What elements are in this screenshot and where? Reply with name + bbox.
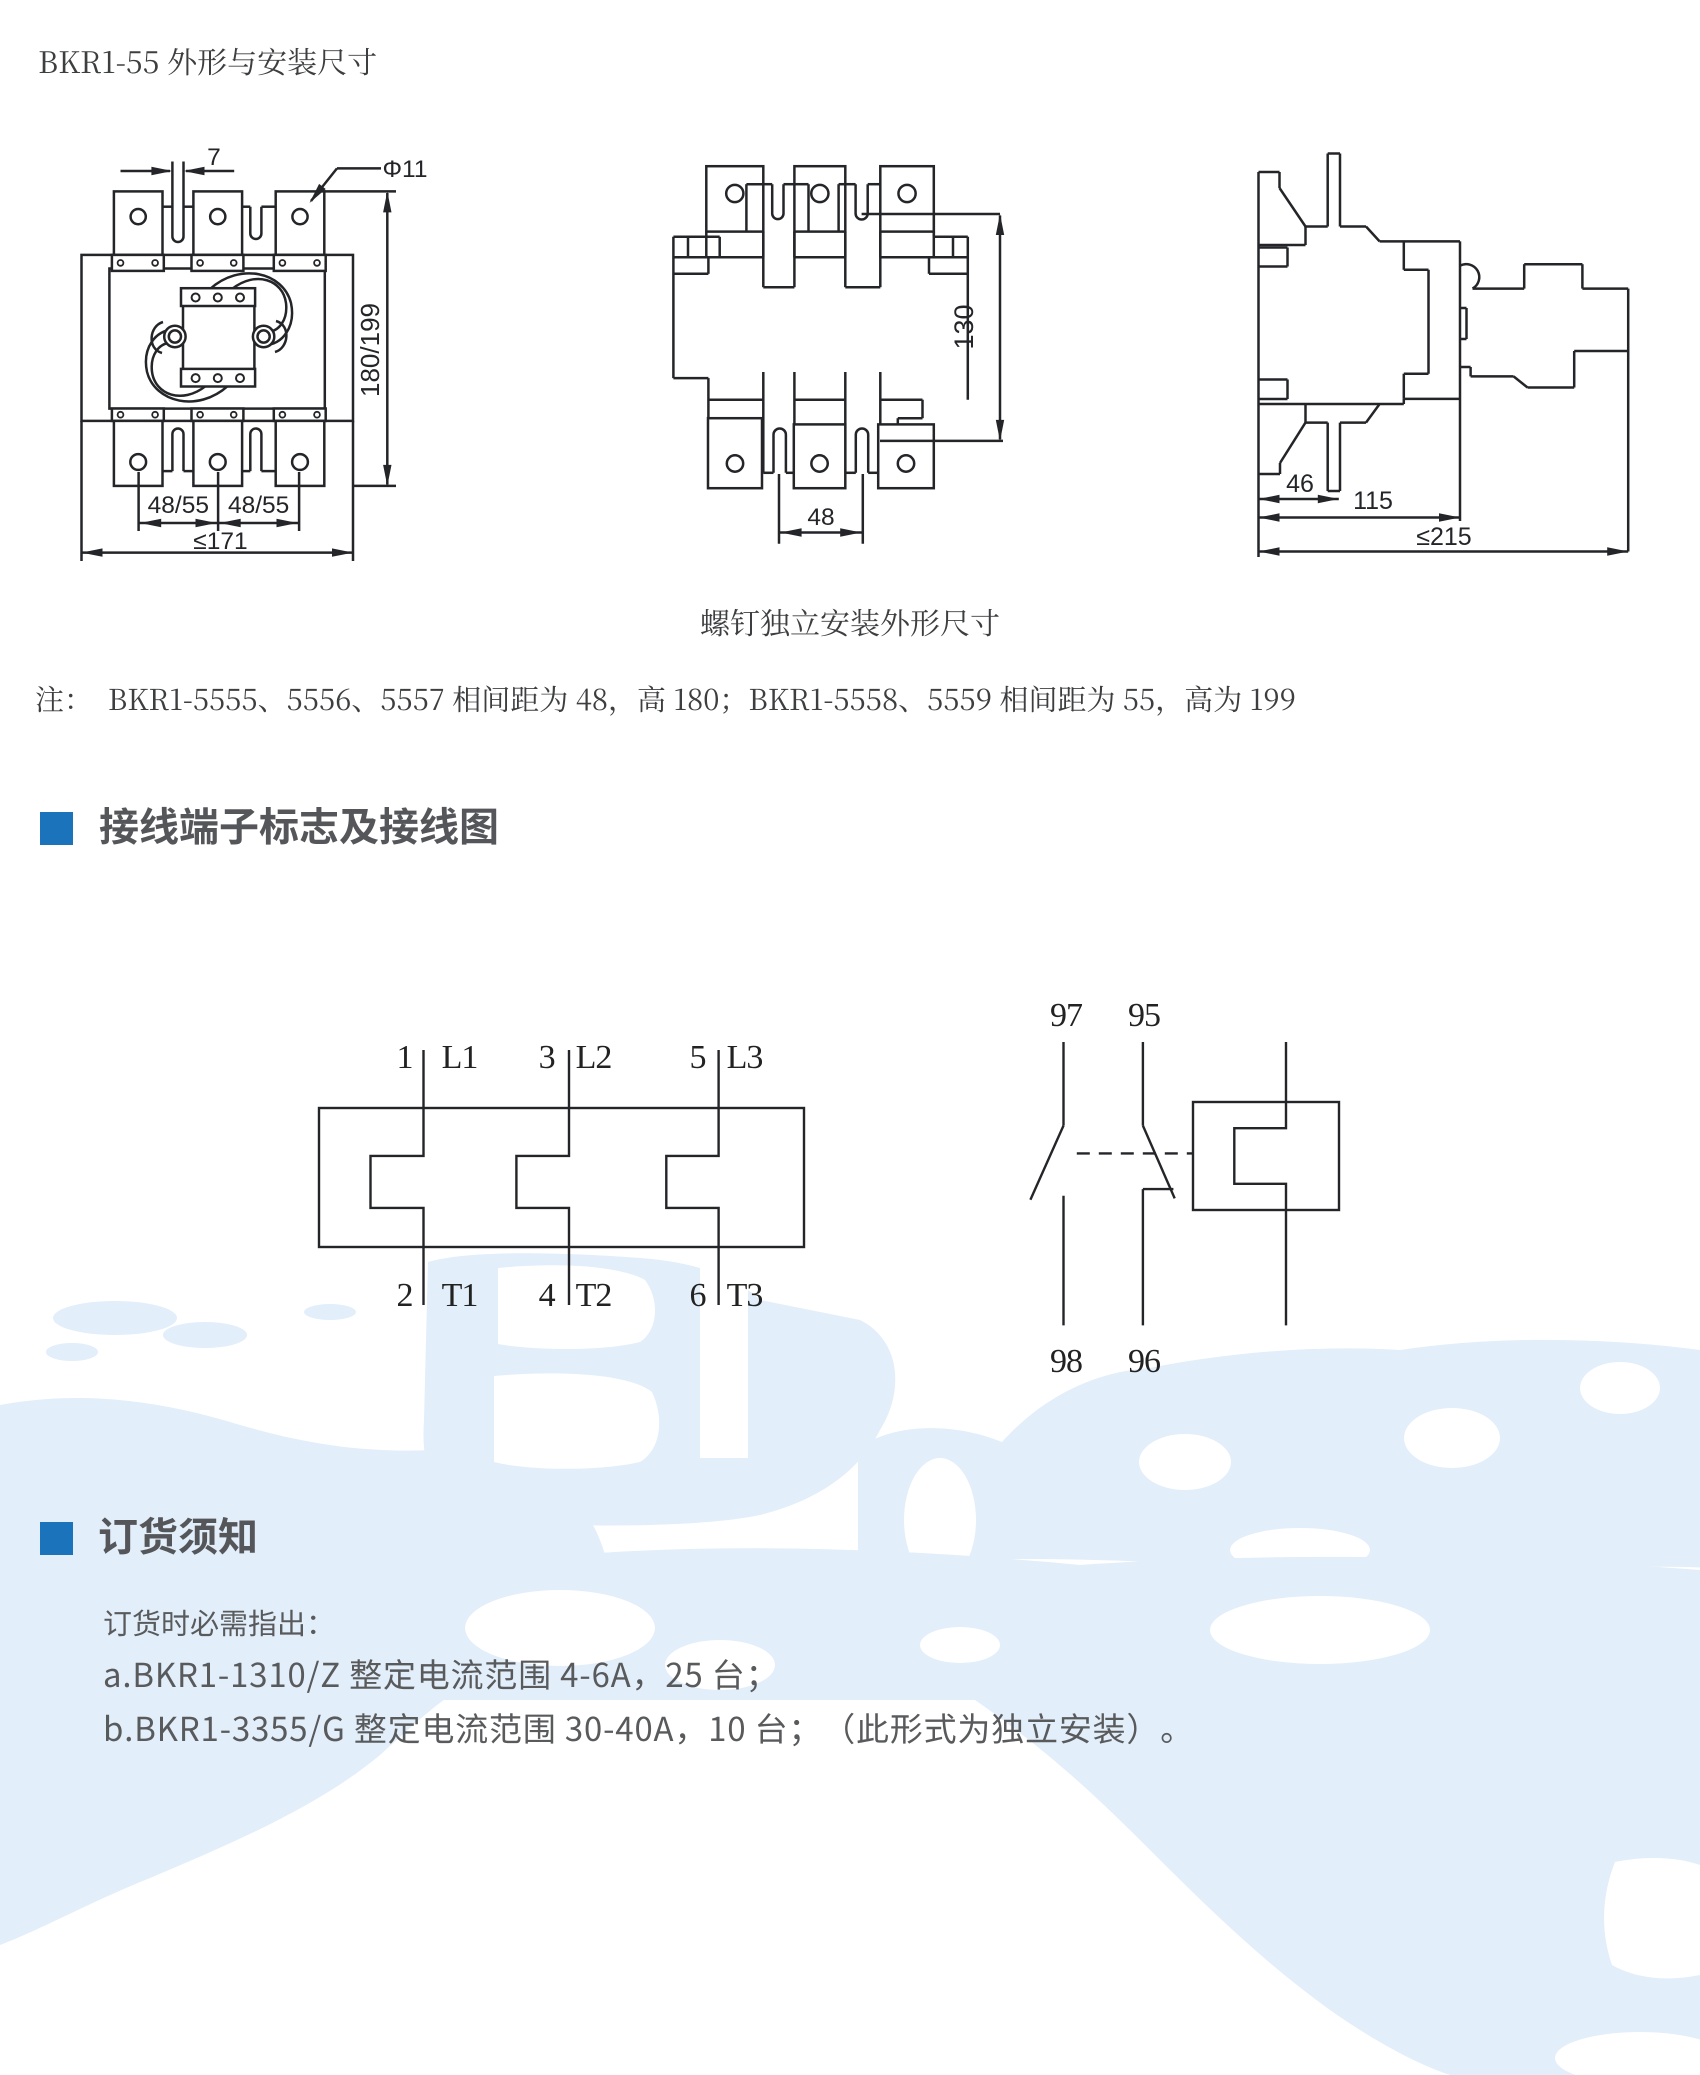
svg-text:7: 7 [207,144,221,171]
svg-text:5: 5 [690,1039,706,1076]
svg-text:96: 96 [1128,1343,1160,1380]
svg-text:L2: L2 [576,1039,612,1076]
svg-text:≤215: ≤215 [1416,523,1471,551]
svg-text:≤171: ≤171 [193,528,247,555]
svg-text:T2: T2 [576,1277,612,1314]
svg-text:4: 4 [539,1277,556,1314]
svg-text:3: 3 [539,1039,555,1076]
svg-text:48: 48 [807,504,834,531]
svg-text:2: 2 [397,1277,413,1314]
svg-text:T1: T1 [442,1277,478,1314]
svg-text:T3: T3 [727,1277,763,1314]
svg-text:97: 97 [1050,997,1083,1034]
svg-text:115: 115 [1353,487,1393,515]
svg-text:1: 1 [397,1039,413,1076]
svg-text:130: 130 [949,304,979,349]
svg-text:180/199: 180/199 [355,303,385,397]
svg-text:95: 95 [1128,997,1160,1034]
svg-text:48/55: 48/55 [148,492,209,519]
svg-text:6: 6 [690,1277,706,1314]
svg-text:L1: L1 [442,1039,478,1076]
svg-text:Φ11: Φ11 [383,156,428,183]
svg-text:46: 46 [1286,470,1314,498]
svg-text:L3: L3 [727,1039,763,1076]
svg-text:98: 98 [1050,1343,1082,1380]
svg-text:48/55: 48/55 [228,492,289,519]
